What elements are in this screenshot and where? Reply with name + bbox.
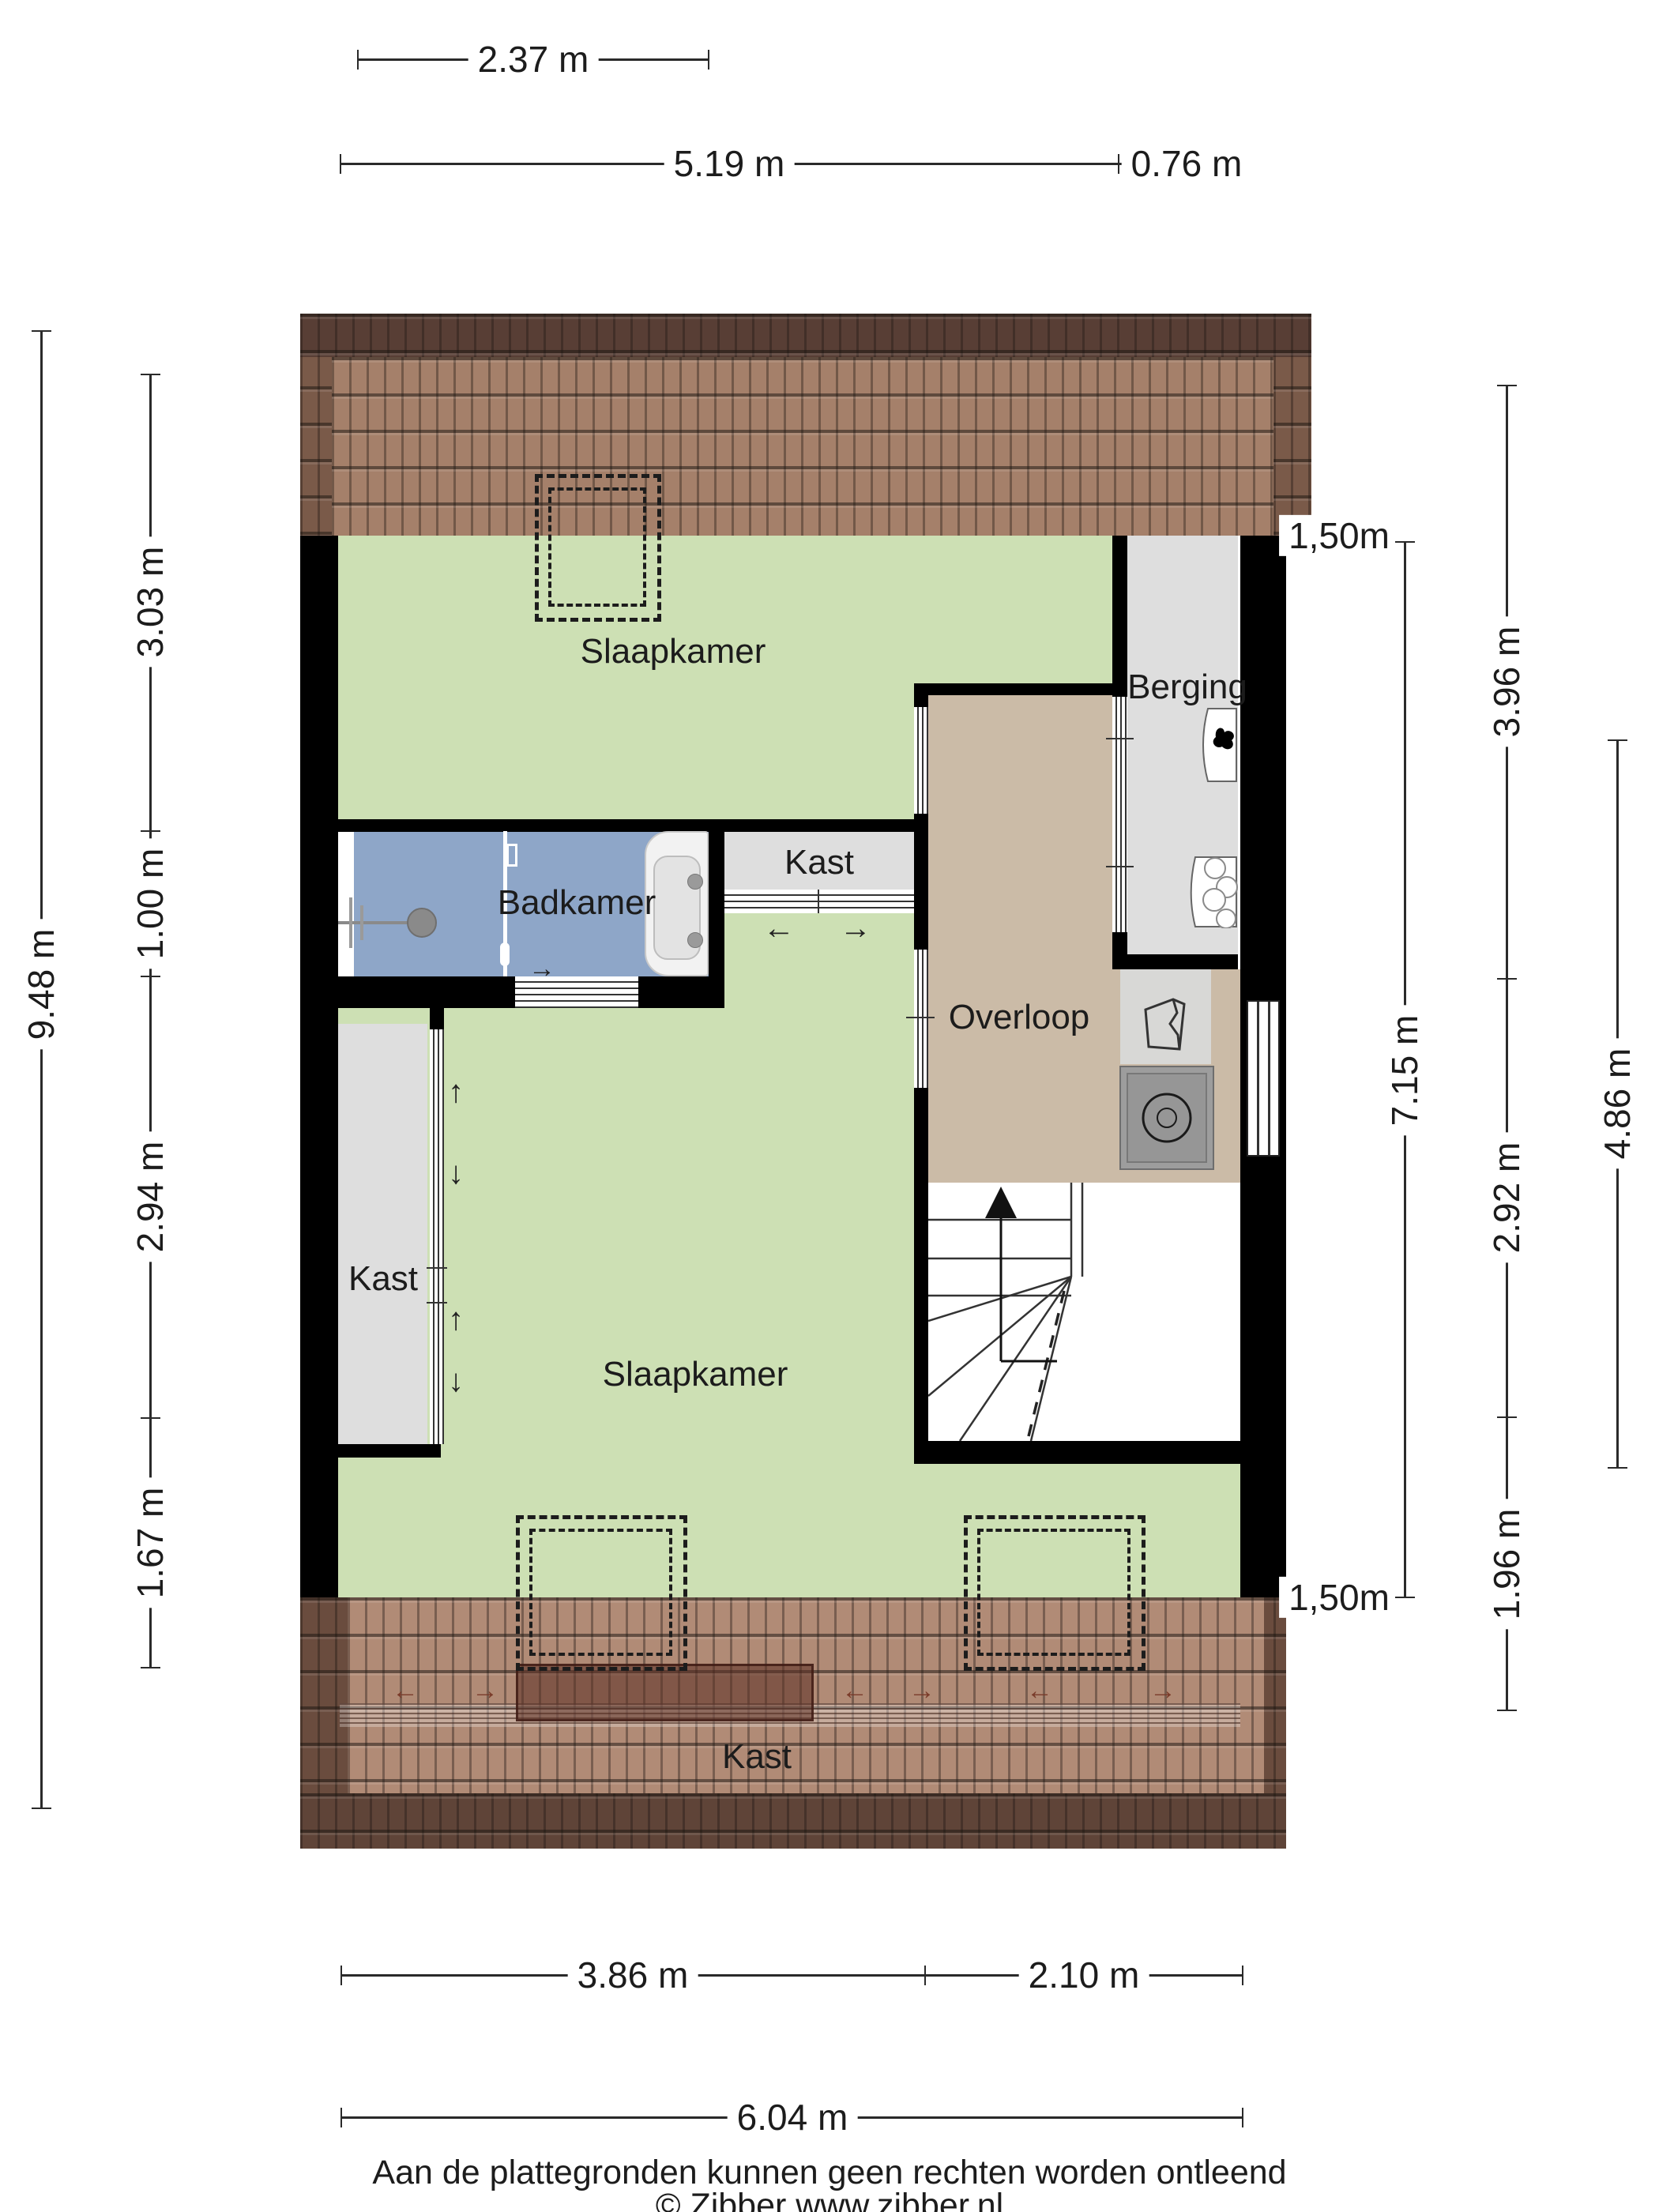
dim-tick: [32, 330, 51, 332]
door-swing-arrow: →: [529, 955, 555, 982]
wall: [430, 1008, 444, 1029]
dim-tick: [340, 2108, 342, 2127]
shower-screen-handle: [500, 942, 510, 966]
dim-tick: [340, 154, 341, 174]
roof-top: [300, 314, 1311, 536]
dim-tick: [1608, 1467, 1627, 1469]
closet-left-sliding-door: [430, 1029, 444, 1444]
shower-screen-hinge: [506, 844, 517, 867]
closet-top-sliding-door: [724, 890, 914, 913]
dim-label: 3.96 m: [1486, 617, 1527, 747]
floor-plan: → ← → ↑ ↓ ↑ ↓ ← → ← → ← → Slaapkamer Bad…: [0, 0, 1659, 2212]
roof-window-dashed: [529, 1529, 672, 1656]
dim-tick: [141, 1417, 160, 1419]
dim-label: 1.96 m: [1486, 1499, 1527, 1630]
roof-top-inner-light: [332, 357, 1273, 536]
dim-label: 2.10 m: [1019, 1954, 1149, 1996]
dim-tick: [340, 1966, 342, 1985]
faucet-knob-icon: [687, 874, 703, 890]
dim-label: 2.92 m: [1486, 1133, 1527, 1263]
dim-tick: [1395, 541, 1415, 543]
headroom-label-bottom: 1,50m: [1279, 1577, 1399, 1618]
attic-door-arrow: →: [472, 1677, 498, 1704]
roof-window-dashed: [548, 487, 646, 607]
door-swing-arrow: ↓: [448, 1157, 464, 1189]
room-bedroom-top-floor: [338, 683, 914, 819]
cv-boiler-icon: [1198, 707, 1238, 783]
roof-dark-rect: [516, 1664, 814, 1721]
dim-tick: [357, 50, 359, 70]
door-swing-arrow: ←: [763, 912, 795, 944]
dim-tick: [141, 976, 160, 977]
attic-door-arrow: →: [1149, 1677, 1176, 1704]
door-swing-arrow: ↓: [448, 1365, 464, 1397]
storage-door-tick: [1106, 738, 1134, 739]
wall: [914, 1441, 1240, 1464]
roof-top-ridge-band: [300, 314, 1311, 357]
dim-label: 4.86 m: [1597, 1039, 1638, 1169]
dim-label: 3.03 m: [130, 537, 171, 668]
closet-top-door-divider: [818, 890, 819, 913]
shower-icon: [338, 883, 453, 962]
door-swing-arrow: →: [840, 912, 871, 944]
room-bedroom-main-floor: [724, 913, 914, 1008]
wall: [338, 819, 914, 832]
attic-door-arrow: ←: [1026, 1677, 1053, 1704]
storage-door: [1112, 697, 1127, 932]
dim-label: 9.48 m: [21, 920, 62, 1050]
bedroom-main-landing-door: [914, 950, 928, 1088]
wall: [709, 831, 724, 976]
closet-left-door-divider: [427, 1267, 447, 1269]
wall: [914, 683, 1112, 695]
dim-tick: [141, 830, 160, 832]
roof-bottom-eave-band: [300, 1793, 1286, 1849]
credit-text: © Zibber www.zibber.nl: [0, 2187, 1659, 2212]
dim-label: 6.04 m: [728, 2097, 858, 2138]
dim-label: 5.19 m: [664, 143, 795, 184]
dim-label: 2.94 m: [130, 1132, 171, 1262]
room-label-storage: Berging: [1127, 668, 1247, 707]
wall: [1112, 954, 1238, 969]
dim-tick: [924, 1966, 926, 1985]
dim-tick: [708, 50, 709, 70]
washing-machine-icon: [1119, 1066, 1214, 1170]
dim-tick: [1497, 1710, 1517, 1711]
dim-tick: [1242, 2108, 1243, 2127]
door-swing-arrow: ↑: [448, 1303, 464, 1335]
room-closet-left-floor: [338, 1024, 427, 1444]
dim-label: 1.00 m: [130, 839, 171, 969]
room-label-closet-attic: Kast: [722, 1737, 792, 1777]
room-landing-floor: [928, 695, 1112, 1183]
landing-window: [1247, 1000, 1280, 1157]
dim-tick: [141, 1667, 160, 1668]
storage-door-tick: [1106, 866, 1134, 867]
dim-tick: [1497, 1416, 1517, 1418]
faucet-knob-icon: [687, 932, 703, 948]
dim-tick: [1242, 1966, 1243, 1985]
headroom-label-top: 1,50m: [1279, 515, 1399, 556]
dim-tick: [1395, 1597, 1415, 1598]
dim-label: 7.15 m: [1384, 1006, 1425, 1136]
room-label-bathroom: Badkamer: [498, 883, 656, 923]
dim-tick: [1608, 739, 1627, 741]
staircase: [928, 1183, 1240, 1441]
landing-door-tick: [906, 1017, 935, 1018]
room-label-landing: Overloop: [949, 998, 1090, 1037]
attic-door-arrow: ←: [841, 1677, 868, 1704]
dim-tick: [1497, 978, 1517, 980]
dim-label: 0.76 m: [1122, 143, 1252, 184]
hob-icon: [1187, 856, 1238, 928]
room-label-bedroom-top: Slaapkamer: [581, 632, 766, 671]
attic-door-arrow: →: [908, 1677, 935, 1704]
wardrobe-icon: [1142, 997, 1189, 1054]
roof-window-dashed: [977, 1529, 1130, 1656]
dim-tick: [32, 1808, 51, 1809]
room-label-closet-left: Kast: [348, 1259, 418, 1299]
closet-left-door-divider: [427, 1302, 447, 1303]
bedroom-top-landing-door: [914, 707, 928, 814]
attic-door-arrow: ←: [392, 1677, 419, 1704]
room-label-closet-top: Kast: [784, 843, 854, 882]
dim-label: 2.37 m: [468, 39, 599, 80]
dim-label: 3.86 m: [568, 1954, 698, 1996]
dim-tick: [1118, 154, 1119, 174]
wall: [300, 536, 338, 1597]
room-label-bedroom-main: Slaapkamer: [603, 1355, 788, 1394]
wall: [338, 1444, 441, 1458]
dim-line: [40, 330, 43, 1809]
dim-tick: [1497, 385, 1517, 386]
door-swing-arrow: ↑: [448, 1076, 464, 1108]
dim-label: 1.67 m: [130, 1478, 171, 1608]
dim-tick: [141, 374, 160, 375]
